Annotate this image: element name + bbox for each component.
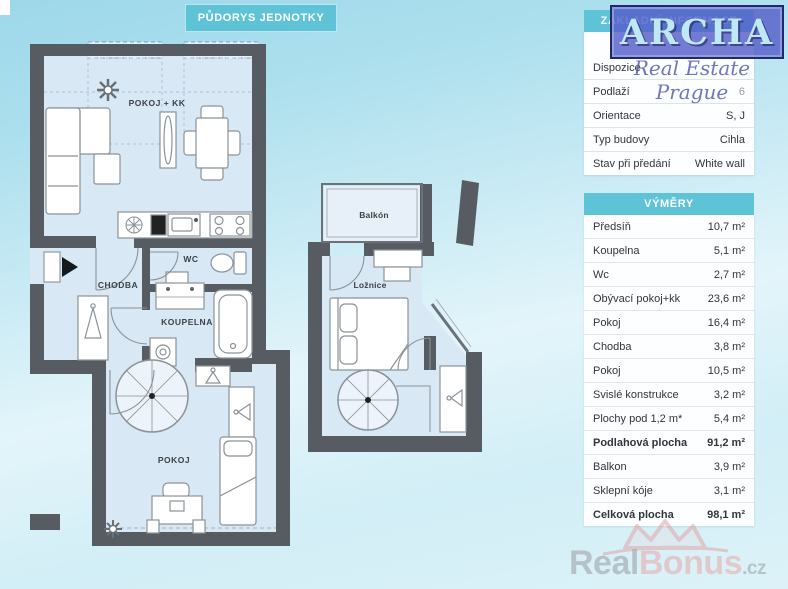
watermark-bonus: Bonus [639,544,742,582]
row-value: White wall [695,158,745,170]
table-row: Wc 2,7 m² [584,263,754,287]
label-balcony: Balkón [359,210,389,220]
watermark-cz: .cz [742,558,766,579]
hall-wardrobe [78,296,108,360]
row-label: Sklepní kóje [593,485,653,497]
areas-panel: VÝMĚRY Předsíň 10,7 m² Koupelna 5,1 m² W… [584,193,754,526]
svg-text:RealBonus.cz: RealBonus.cz [569,544,766,582]
row-label: Svislé konstrukce [593,389,679,401]
label-hall: CHODBA [98,280,138,290]
row-label: Obývací pokoj+kk [593,293,680,305]
row-label: Balkon [593,461,627,473]
table-row: Pokoj 10,5 m² [584,359,754,383]
areas-title: VÝMĚRY [644,198,694,210]
tall-cabinet [229,387,254,437]
shelf [160,112,176,168]
row-label: Typ budovy [593,134,649,146]
bathtub [214,290,252,358]
row-value: 2,7 m² [714,269,745,281]
label-living-room: POKOJ + KK [129,98,186,108]
table-row: Obývací pokoj+kk 23,6 m² [584,287,754,311]
table-row: Stav při předání White wall [584,152,754,175]
table-row: Chodba 3,8 m² [584,335,754,359]
label-wc: WC [183,254,198,264]
areas-header: VÝMĚRY [584,193,754,215]
watermark-real: Real [569,544,639,582]
row-label: Orientace [593,110,641,122]
row-label: Stav při předání [593,158,671,170]
table-row: Balkon 3,9 m² [584,455,754,479]
label-bathroom: KOUPELNA [161,317,213,327]
table-row: Plochy pod 1,2 m* 5,4 m² [584,407,754,431]
single-bed [220,437,256,525]
bathroom-sink [156,283,204,309]
compass-rose [97,79,119,101]
row-value: 10,5 m² [708,365,745,377]
table-row-total: Podlahová plocha 91,2 m² [584,431,754,455]
spiral-stairs-lower [116,360,188,432]
table-row: Typ budovy Cihla [584,128,754,152]
table-row: Orientace S, J [584,104,754,128]
row-label: Wc [593,269,609,281]
table-row: Sklepní kóje 3,1 m² [584,479,754,503]
row-value: 3,1 m² [714,485,745,497]
row-value: 16,4 m² [708,317,745,329]
row-value: Cihla [720,134,745,146]
archa-logo-tagline: Real Estate Prague [596,56,788,104]
listing-floorplan-page: PŮDORYS JEDNOTKY [0,0,788,589]
table-row: Svislé konstrukce 3,2 m² [584,383,754,407]
row-value: 5,1 m² [714,245,745,257]
row-label: Chodba [593,341,632,353]
room-wardrobe [196,366,230,386]
floorplan-svg: POKOJ + KK WC CHODBA KOUPELNA POKOJ Balk… [0,0,560,589]
row-label: Podlahová plocha [593,437,687,449]
row-label: Koupelna [593,245,640,257]
toilet [211,252,246,274]
row-label: Plochy pod 1,2 m* [593,413,682,425]
label-bedroom: Ložnice [353,280,386,290]
row-label: Pokoj [593,365,621,377]
row-value: S, J [726,110,745,122]
upper-wardrobe [440,366,466,432]
row-value: 10,7 m² [708,221,745,233]
row-value: 3,8 m² [714,341,745,353]
row-value: 23,6 m² [708,293,745,305]
row-value: 3,9 m² [714,461,745,473]
row-value: 91,2 m² [707,437,745,449]
kitchen-counter [118,212,252,238]
areas-table: Předsíň 10,7 m² Koupelna 5,1 m² Wc 2,7 m… [584,215,754,526]
table-row: Pokoj 16,4 m² [584,311,754,335]
archa-logo-text: ARCHA [620,12,774,53]
row-value: 5,4 m² [714,413,745,425]
archa-logo: ARCHA [610,5,784,59]
table-row: Předsíň 10,7 m² [584,215,754,239]
realbonus-watermark: RealBonus.cz [563,518,783,584]
row-label: Předsíň [593,221,631,233]
double-bed [330,298,408,370]
label-room: POKOJ [158,455,190,465]
table-row: Koupelna 5,1 m² [584,239,754,263]
row-value: 3,2 m² [714,389,745,401]
row-label: Pokoj [593,317,621,329]
